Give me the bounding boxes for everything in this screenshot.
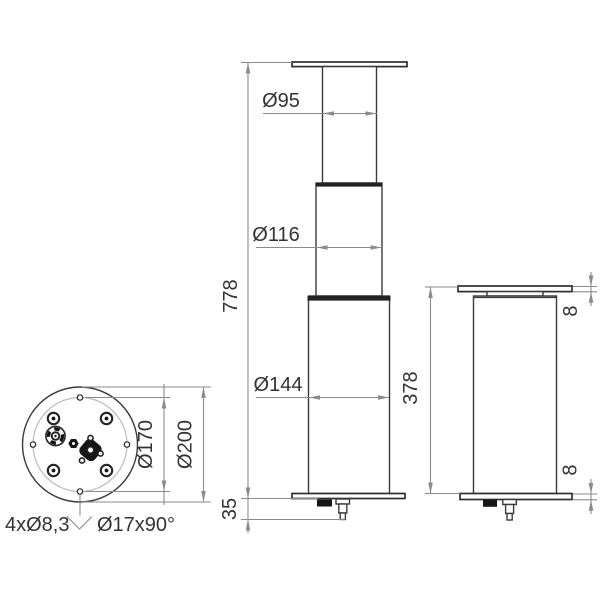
arrowhead-down (589, 276, 594, 287)
foot-flange (336, 499, 350, 504)
view-front-extended (292, 62, 407, 520)
foot-stem (339, 504, 347, 513)
technical-drawing-canvas: Ø95 Ø116 Ø144 778 35 378 (0, 0, 600, 600)
foot-tip (507, 514, 512, 521)
countersink-note: Ø17x90° (97, 514, 175, 536)
index-hole (30, 442, 35, 447)
dimension-t8-bottom: 8 (560, 464, 598, 514)
arrowhead-up (246, 520, 251, 531)
arrowhead-down (201, 491, 206, 502)
arrowhead-up (162, 398, 167, 409)
dim-label: Ø144 (254, 374, 303, 396)
lower-tube-collar (308, 296, 391, 301)
foot-flange (503, 500, 517, 505)
index-hole (77, 395, 82, 400)
index-hole (77, 489, 82, 494)
middle-tube (316, 183, 382, 296)
foot-tip (340, 513, 345, 520)
dim-label: Ø170 (135, 420, 157, 469)
dim-label: 378 (400, 371, 422, 404)
holes-note: 4xØ8,3 (5, 514, 69, 536)
arrowhead-up (246, 63, 251, 74)
dim-label: 778 (220, 279, 242, 312)
base-plate (292, 494, 405, 499)
arrowhead-up (589, 292, 594, 303)
drawing-page: Ø95 Ø116 Ø144 778 35 378 (0, 0, 600, 600)
view-front-collapsed (458, 286, 572, 520)
dimension-h378: 378 (400, 287, 460, 494)
upper-tube (323, 67, 377, 183)
countersunk-hole (101, 465, 112, 476)
mounting-nut (317, 500, 332, 507)
column-tube (474, 296, 557, 494)
arrowhead-up (428, 287, 433, 298)
dim-label: Ø95 (262, 90, 300, 112)
arrowhead-down (589, 483, 594, 494)
arrowhead-up (589, 500, 594, 511)
top-plate (458, 286, 572, 292)
arrowhead-down (162, 481, 167, 492)
dim-label: 8 (560, 305, 582, 316)
lower-tube (309, 296, 390, 494)
base-plate (460, 494, 572, 500)
dimension-h778: 778 (220, 63, 318, 499)
dim-label: Ø200 (175, 420, 197, 469)
arrowhead-down (246, 488, 251, 499)
release-mechanism (46, 426, 65, 445)
leveling-foot (336, 499, 350, 520)
leveling-foot (503, 500, 517, 521)
mounting-nut (483, 500, 497, 507)
countersink-icon (67, 517, 92, 530)
countersunk-hole (101, 413, 112, 424)
index-hole (124, 442, 129, 447)
arrowhead-down (428, 483, 433, 494)
arrowhead-up (201, 387, 206, 398)
foot-stem (506, 505, 514, 514)
dim-label: 8 (560, 464, 582, 475)
middle-tube-cap (316, 183, 382, 187)
dim-label: Ø116 (252, 224, 299, 246)
countersunk-hole (48, 465, 59, 476)
dimension-t8-top: 8 (560, 272, 597, 317)
outer-plate-circle (23, 387, 138, 502)
countersunk-hole (48, 413, 59, 424)
view-bottom-plate (23, 387, 138, 502)
dim-label: 35 (219, 498, 241, 520)
